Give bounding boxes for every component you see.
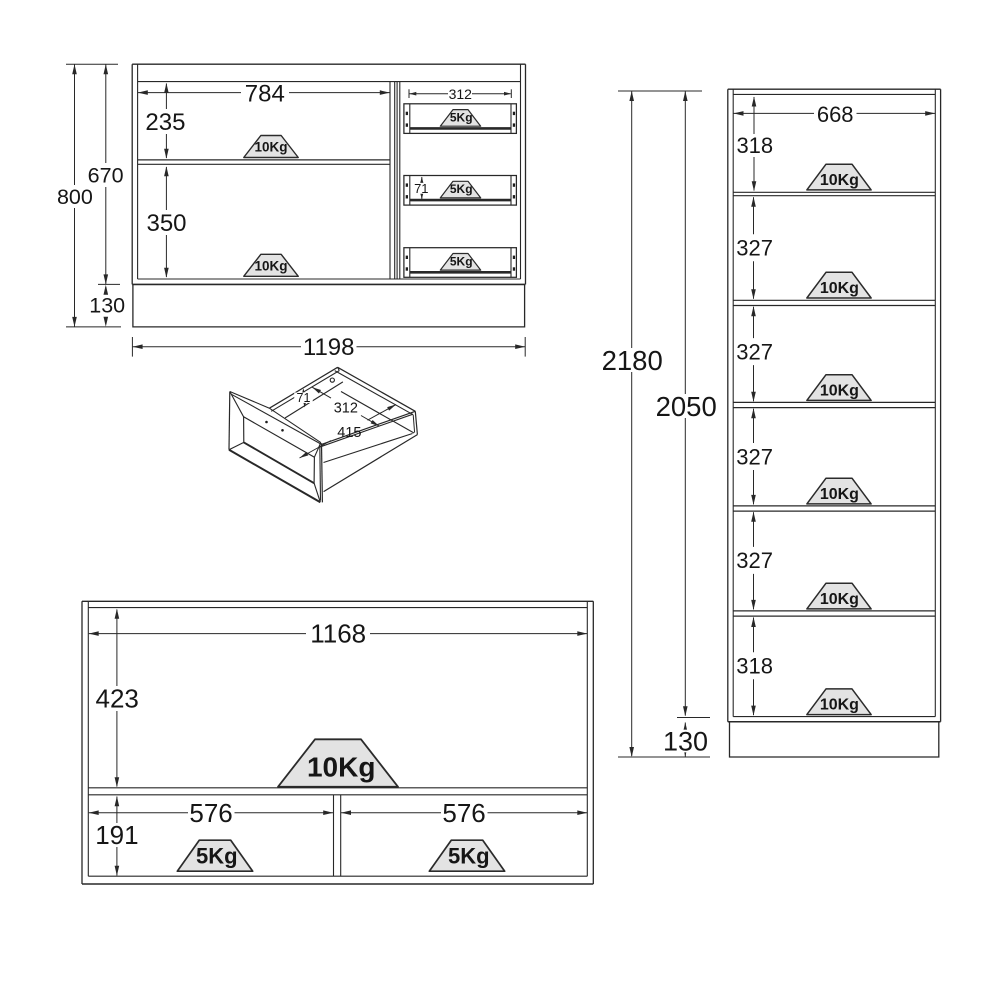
svg-text:10Kg: 10Kg: [820, 486, 859, 503]
svg-text:327: 327: [736, 548, 773, 573]
svg-text:312: 312: [334, 400, 358, 416]
svg-text:668: 668: [817, 102, 854, 127]
svg-text:10Kg: 10Kg: [820, 591, 859, 608]
svg-text:327: 327: [736, 339, 773, 364]
svg-text:10Kg: 10Kg: [820, 382, 859, 399]
svg-text:10Kg: 10Kg: [254, 140, 287, 155]
svg-text:576: 576: [189, 798, 232, 828]
svg-text:130: 130: [89, 293, 125, 317]
svg-text:576: 576: [442, 798, 485, 828]
svg-text:423: 423: [96, 683, 139, 713]
svg-text:10Kg: 10Kg: [820, 280, 859, 297]
svg-text:312: 312: [449, 86, 473, 102]
svg-text:415: 415: [337, 425, 361, 441]
svg-text:5Kg: 5Kg: [450, 110, 473, 124]
svg-text:5Kg: 5Kg: [450, 182, 473, 196]
svg-text:318: 318: [736, 133, 773, 158]
svg-text:10Kg: 10Kg: [820, 696, 859, 713]
svg-text:2180: 2180: [602, 345, 663, 376]
svg-text:71: 71: [414, 181, 428, 196]
svg-text:327: 327: [736, 444, 773, 469]
svg-text:5Kg: 5Kg: [450, 254, 473, 268]
svg-text:5Kg: 5Kg: [448, 844, 490, 869]
svg-text:670: 670: [88, 164, 124, 188]
svg-text:5Kg: 5Kg: [196, 844, 238, 869]
svg-text:71: 71: [297, 391, 311, 405]
svg-text:1198: 1198: [303, 334, 355, 361]
svg-text:350: 350: [146, 210, 186, 237]
svg-text:130: 130: [663, 727, 708, 757]
svg-text:10Kg: 10Kg: [820, 172, 859, 189]
svg-text:327: 327: [736, 236, 773, 261]
svg-text:10Kg: 10Kg: [254, 258, 287, 273]
svg-text:191: 191: [95, 820, 138, 850]
svg-text:318: 318: [736, 654, 773, 679]
svg-text:1168: 1168: [310, 619, 366, 649]
svg-text:800: 800: [57, 185, 93, 209]
svg-text:235: 235: [145, 109, 185, 136]
svg-text:10Kg: 10Kg: [307, 752, 375, 783]
svg-text:2050: 2050: [656, 391, 717, 422]
svg-text:784: 784: [245, 80, 285, 107]
